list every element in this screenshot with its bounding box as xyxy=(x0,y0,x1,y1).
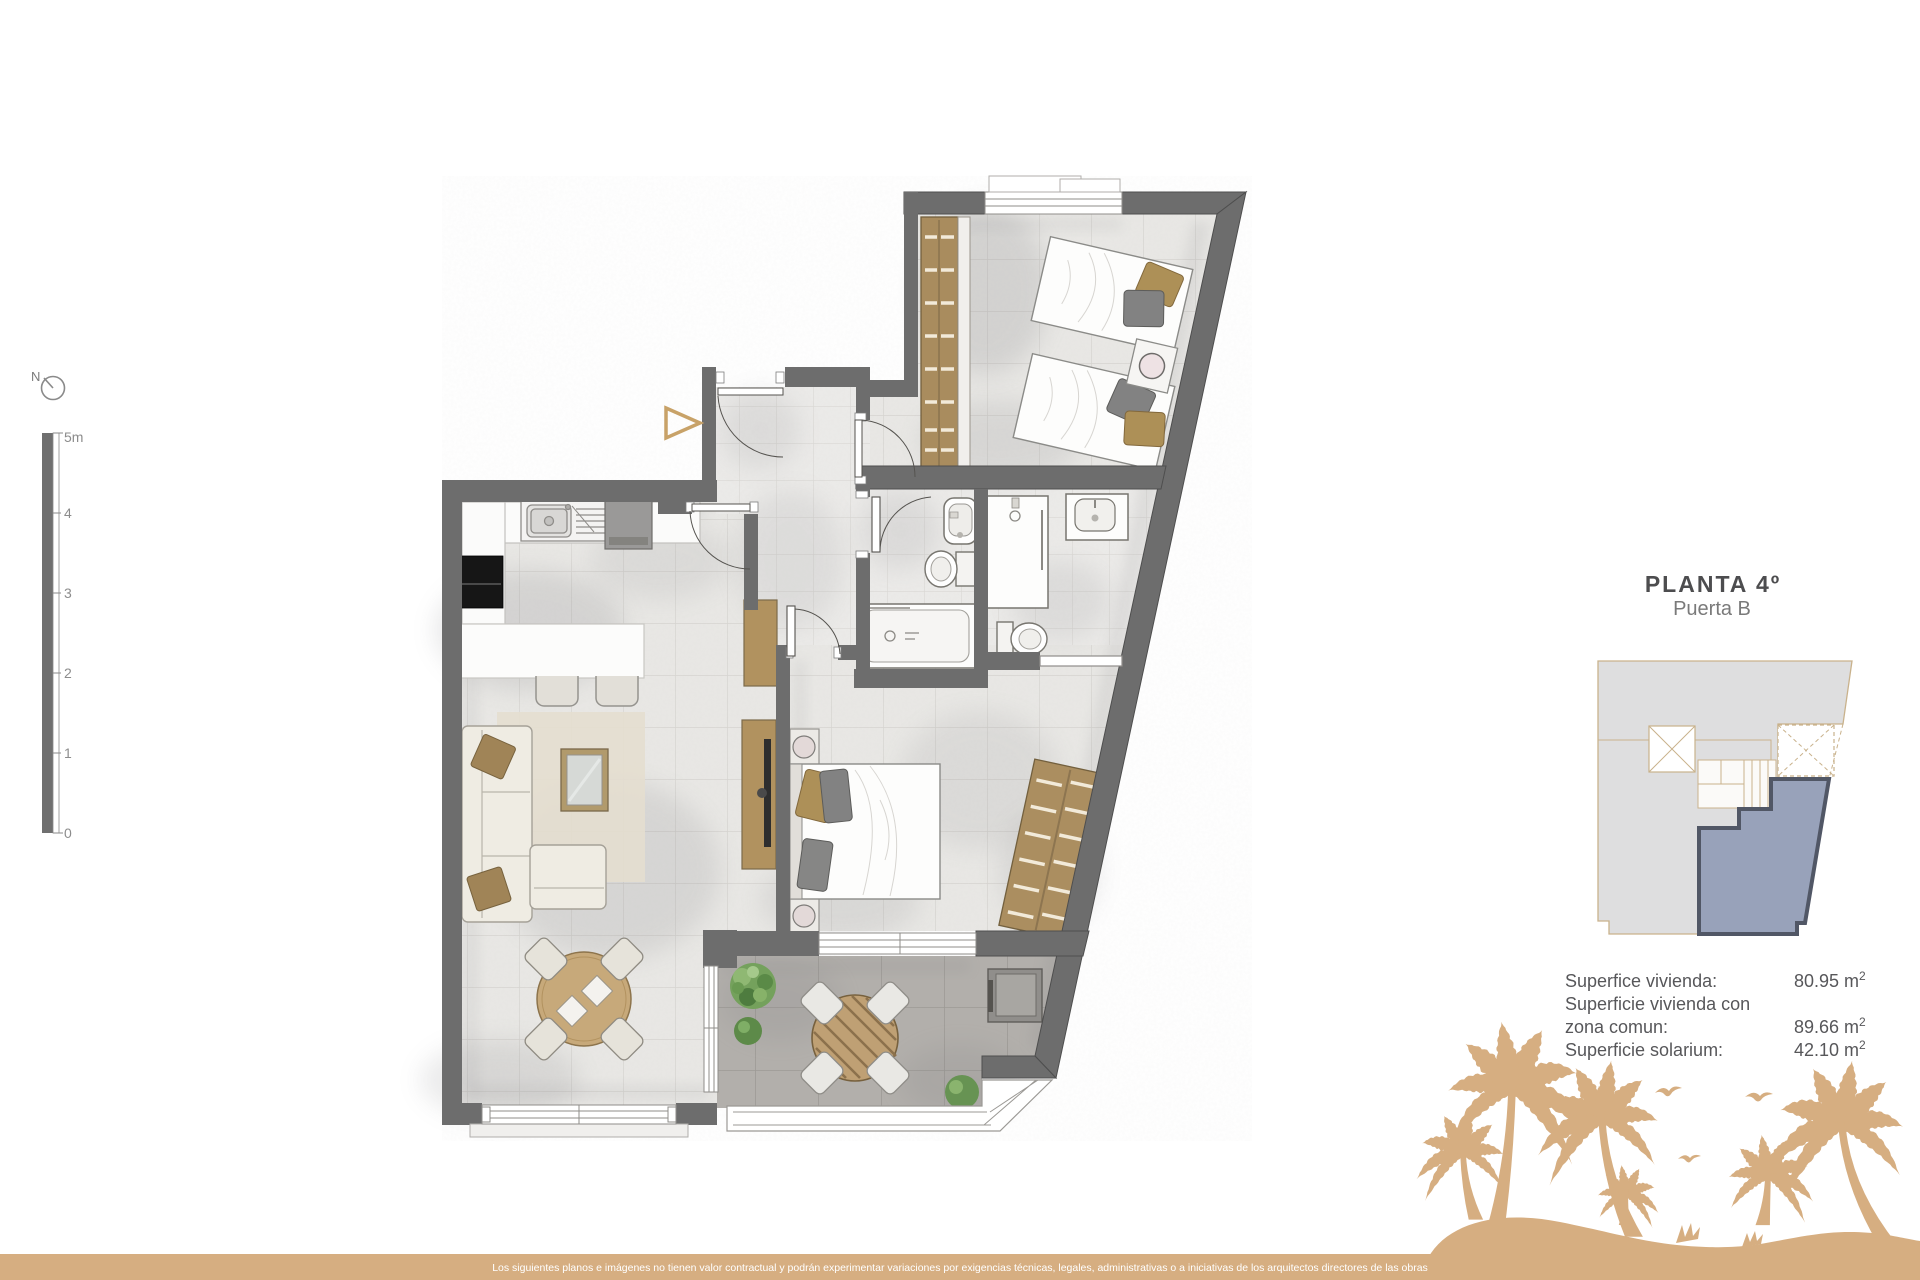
svg-text:zona comun:: zona comun: xyxy=(1565,1017,1668,1037)
svg-text:Superficie solarium:: Superficie solarium: xyxy=(1565,1040,1723,1060)
svg-text:3: 3 xyxy=(64,585,72,601)
svg-text:PLANTA 4º: PLANTA 4º xyxy=(1645,571,1781,597)
svg-text:Superfice vivienda:: Superfice vivienda: xyxy=(1565,971,1717,991)
svg-text:89.66 m2: 89.66 m2 xyxy=(1794,1015,1866,1037)
svg-text:2: 2 xyxy=(64,665,72,681)
svg-text:42.10 m2: 42.10 m2 xyxy=(1794,1038,1866,1060)
svg-text:80.95 m2: 80.95 m2 xyxy=(1794,969,1866,991)
svg-text:0: 0 xyxy=(64,825,72,841)
svg-text:Los siguientes planos e imágen: Los siguientes planos e imágenes no tien… xyxy=(492,1262,1428,1274)
svg-text:N: N xyxy=(31,369,40,384)
svg-text:Superficie vivienda con: Superficie vivienda con xyxy=(1565,994,1750,1014)
svg-text:4: 4 xyxy=(64,505,72,521)
svg-text:5m: 5m xyxy=(64,429,83,445)
svg-text:Puerta B: Puerta B xyxy=(1673,598,1751,620)
svg-text:1: 1 xyxy=(64,745,72,761)
